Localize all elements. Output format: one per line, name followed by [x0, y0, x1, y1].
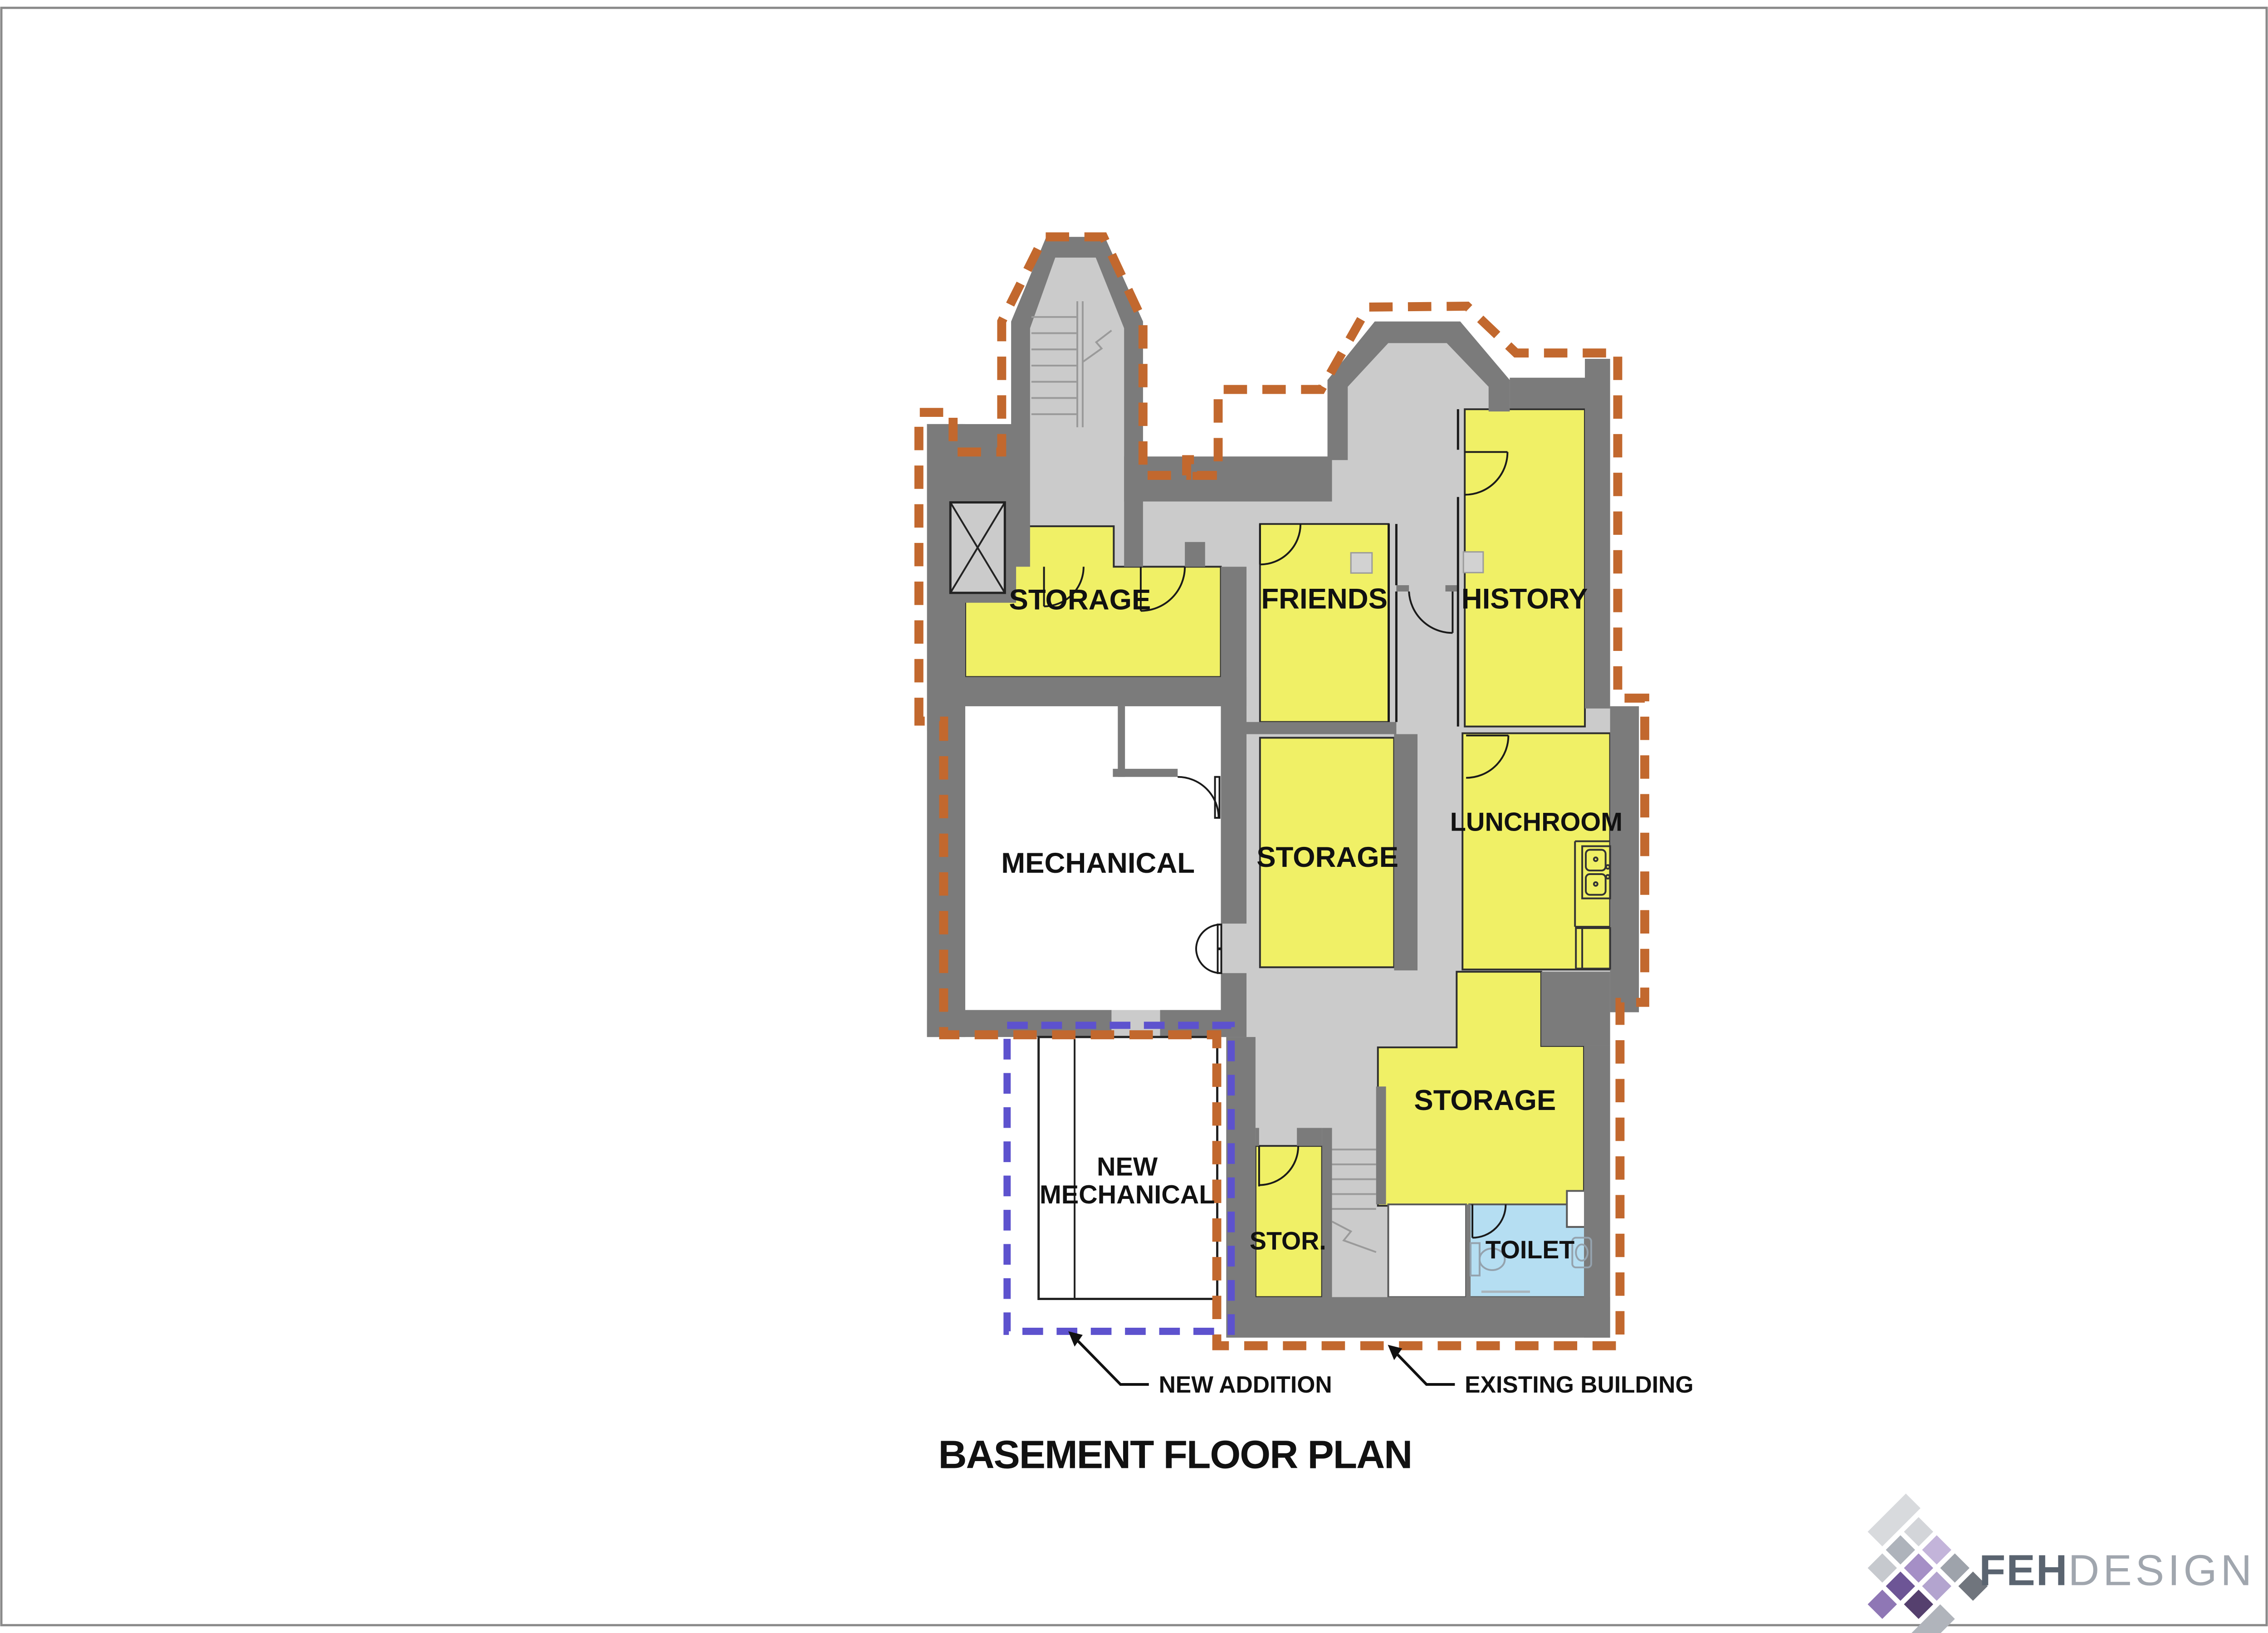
wall-east-lower	[1584, 1046, 1610, 1338]
wall-stairs-west	[1322, 1128, 1332, 1297]
wall-nook-bottom	[1113, 769, 1178, 777]
wall-door-stub	[1185, 542, 1205, 567]
wall-history-east	[1585, 359, 1610, 709]
wall-southeast-chunk	[1541, 972, 1610, 1046]
room-friends-label: FRIENDS	[1261, 583, 1388, 615]
wall-storage-mechanical-divider	[965, 677, 1246, 706]
column-history	[1463, 552, 1483, 573]
column-friends	[1351, 553, 1372, 573]
logo-feh-text: FEH	[1979, 1546, 2068, 1594]
room-lunchroom-label: LUNCHROOM	[1450, 808, 1623, 837]
drawing-title: BASEMENT FLOOR PLAN	[938, 1433, 1412, 1477]
wall-corridor-door-stub-left	[1396, 585, 1409, 592]
room-history-label: HISTORY	[1461, 583, 1588, 615]
wall-stor-stub-left	[1256, 1128, 1259, 1146]
wall-northeast-band	[1510, 378, 1585, 408]
room-mechanical-label: MECHANICAL	[1001, 847, 1195, 879]
wall-stairs-east	[1376, 1086, 1386, 1204]
room-new-mechanical-label-line2: MECHANICAL	[1040, 1180, 1215, 1209]
logo-design-text: DESIGN	[2068, 1546, 2256, 1594]
elevator-shaft	[950, 503, 1005, 593]
wall-friends-storage-divider	[1246, 722, 1396, 734]
room-storage-middle-label: STORAGE	[1256, 841, 1398, 873]
legend-existing-building-label: EXISTING BUILDING	[1465, 1371, 1693, 1398]
wall-south-band	[1226, 1297, 1610, 1338]
room-unlabeled-white-area	[1388, 1204, 1466, 1297]
room-storage-lower-label: STORAGE	[1414, 1085, 1556, 1116]
room-toilet-label: TOILET	[1486, 1236, 1575, 1264]
room-mechanical-nook-area	[1125, 706, 1221, 769]
wall-east-of-left-wing-upper	[1221, 567, 1246, 924]
wall-corridor-door-stub-right	[1446, 585, 1458, 592]
wall-lunchroom-bump-east	[1610, 706, 1639, 1012]
room-lunchroom-area	[1462, 733, 1610, 969]
room-storage-small-area	[1256, 1146, 1322, 1297]
room-storage-small-label: STOR.	[1250, 1227, 1326, 1255]
wall-nook-side	[1118, 706, 1125, 777]
basement-floor-plan-sheet: STORAGE FRIENDS HISTORY STORAGE LUNCHROO…	[0, 0, 2268, 1633]
room-new-mechanical-label-line1: NEW	[1097, 1153, 1158, 1182]
wall-stor-stub-right	[1297, 1128, 1322, 1146]
legend-new-addition-label: NEW ADDITION	[1159, 1371, 1332, 1398]
room-storage-upper-left-label: STORAGE	[1009, 584, 1151, 616]
